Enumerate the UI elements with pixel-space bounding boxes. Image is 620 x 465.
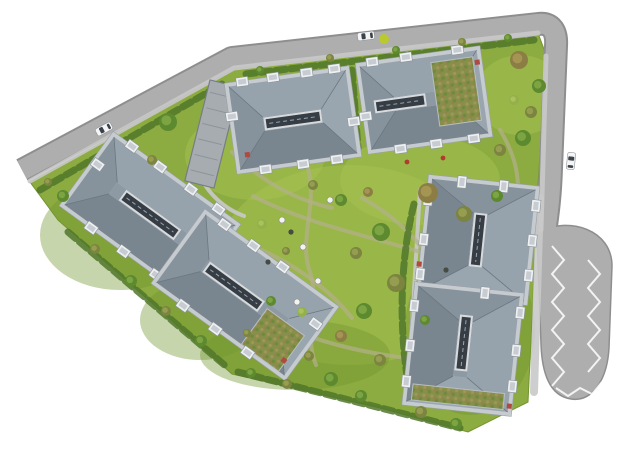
garden-object [288, 229, 293, 234]
tree [363, 187, 373, 197]
site-plan-rendering [0, 0, 620, 465]
tree [450, 418, 462, 430]
tree [372, 223, 390, 241]
building-6 [399, 279, 527, 416]
tree [509, 95, 519, 105]
roof-vent [245, 152, 251, 158]
tree [147, 155, 157, 165]
tree [456, 206, 472, 222]
tree [504, 34, 512, 42]
flower-bed [405, 160, 410, 165]
lime-shrub [379, 34, 389, 44]
tree [159, 113, 177, 131]
garden-object [265, 259, 270, 264]
tree [420, 315, 430, 325]
tree [491, 190, 503, 202]
tree [282, 247, 290, 255]
tree [525, 106, 537, 118]
building-2 [352, 42, 494, 158]
roof-vent [416, 261, 421, 266]
tree [256, 66, 264, 74]
garden-furniture [300, 244, 306, 250]
tree [90, 244, 100, 254]
tree [532, 79, 546, 93]
car-3 [566, 152, 576, 170]
site-plan-canvas [0, 0, 620, 465]
tree [125, 275, 137, 287]
tree [418, 183, 438, 203]
tree [335, 330, 347, 342]
parking-loop [537, 225, 612, 399]
tree [266, 296, 276, 306]
garden-furniture [327, 197, 333, 203]
garden-furniture [279, 217, 285, 223]
tree [161, 306, 171, 316]
tree [44, 178, 52, 186]
tree [355, 390, 367, 402]
tree [350, 247, 362, 259]
tree [335, 194, 347, 206]
tree [415, 406, 427, 418]
tree [57, 190, 69, 202]
tree [243, 329, 251, 337]
tree [246, 368, 256, 378]
garden-furniture [315, 278, 321, 284]
tree [387, 274, 405, 292]
tree [282, 379, 292, 389]
garden-furniture [294, 299, 300, 305]
tree [374, 354, 386, 366]
tree [458, 38, 466, 46]
tree [195, 335, 207, 347]
roof-vent [507, 403, 512, 408]
tree [308, 180, 318, 190]
tree [304, 351, 314, 361]
tree [494, 144, 506, 156]
tree [324, 372, 338, 386]
tree [515, 130, 531, 146]
tree [510, 51, 528, 69]
green-roof-patch [431, 57, 481, 126]
tree [392, 46, 400, 54]
tree [297, 307, 307, 317]
car-2 [357, 31, 375, 41]
roof-vent [474, 59, 480, 65]
tree [356, 303, 372, 319]
garden-object [443, 267, 448, 272]
tree [326, 54, 334, 62]
tree [257, 219, 267, 229]
flower-bed [441, 156, 446, 161]
